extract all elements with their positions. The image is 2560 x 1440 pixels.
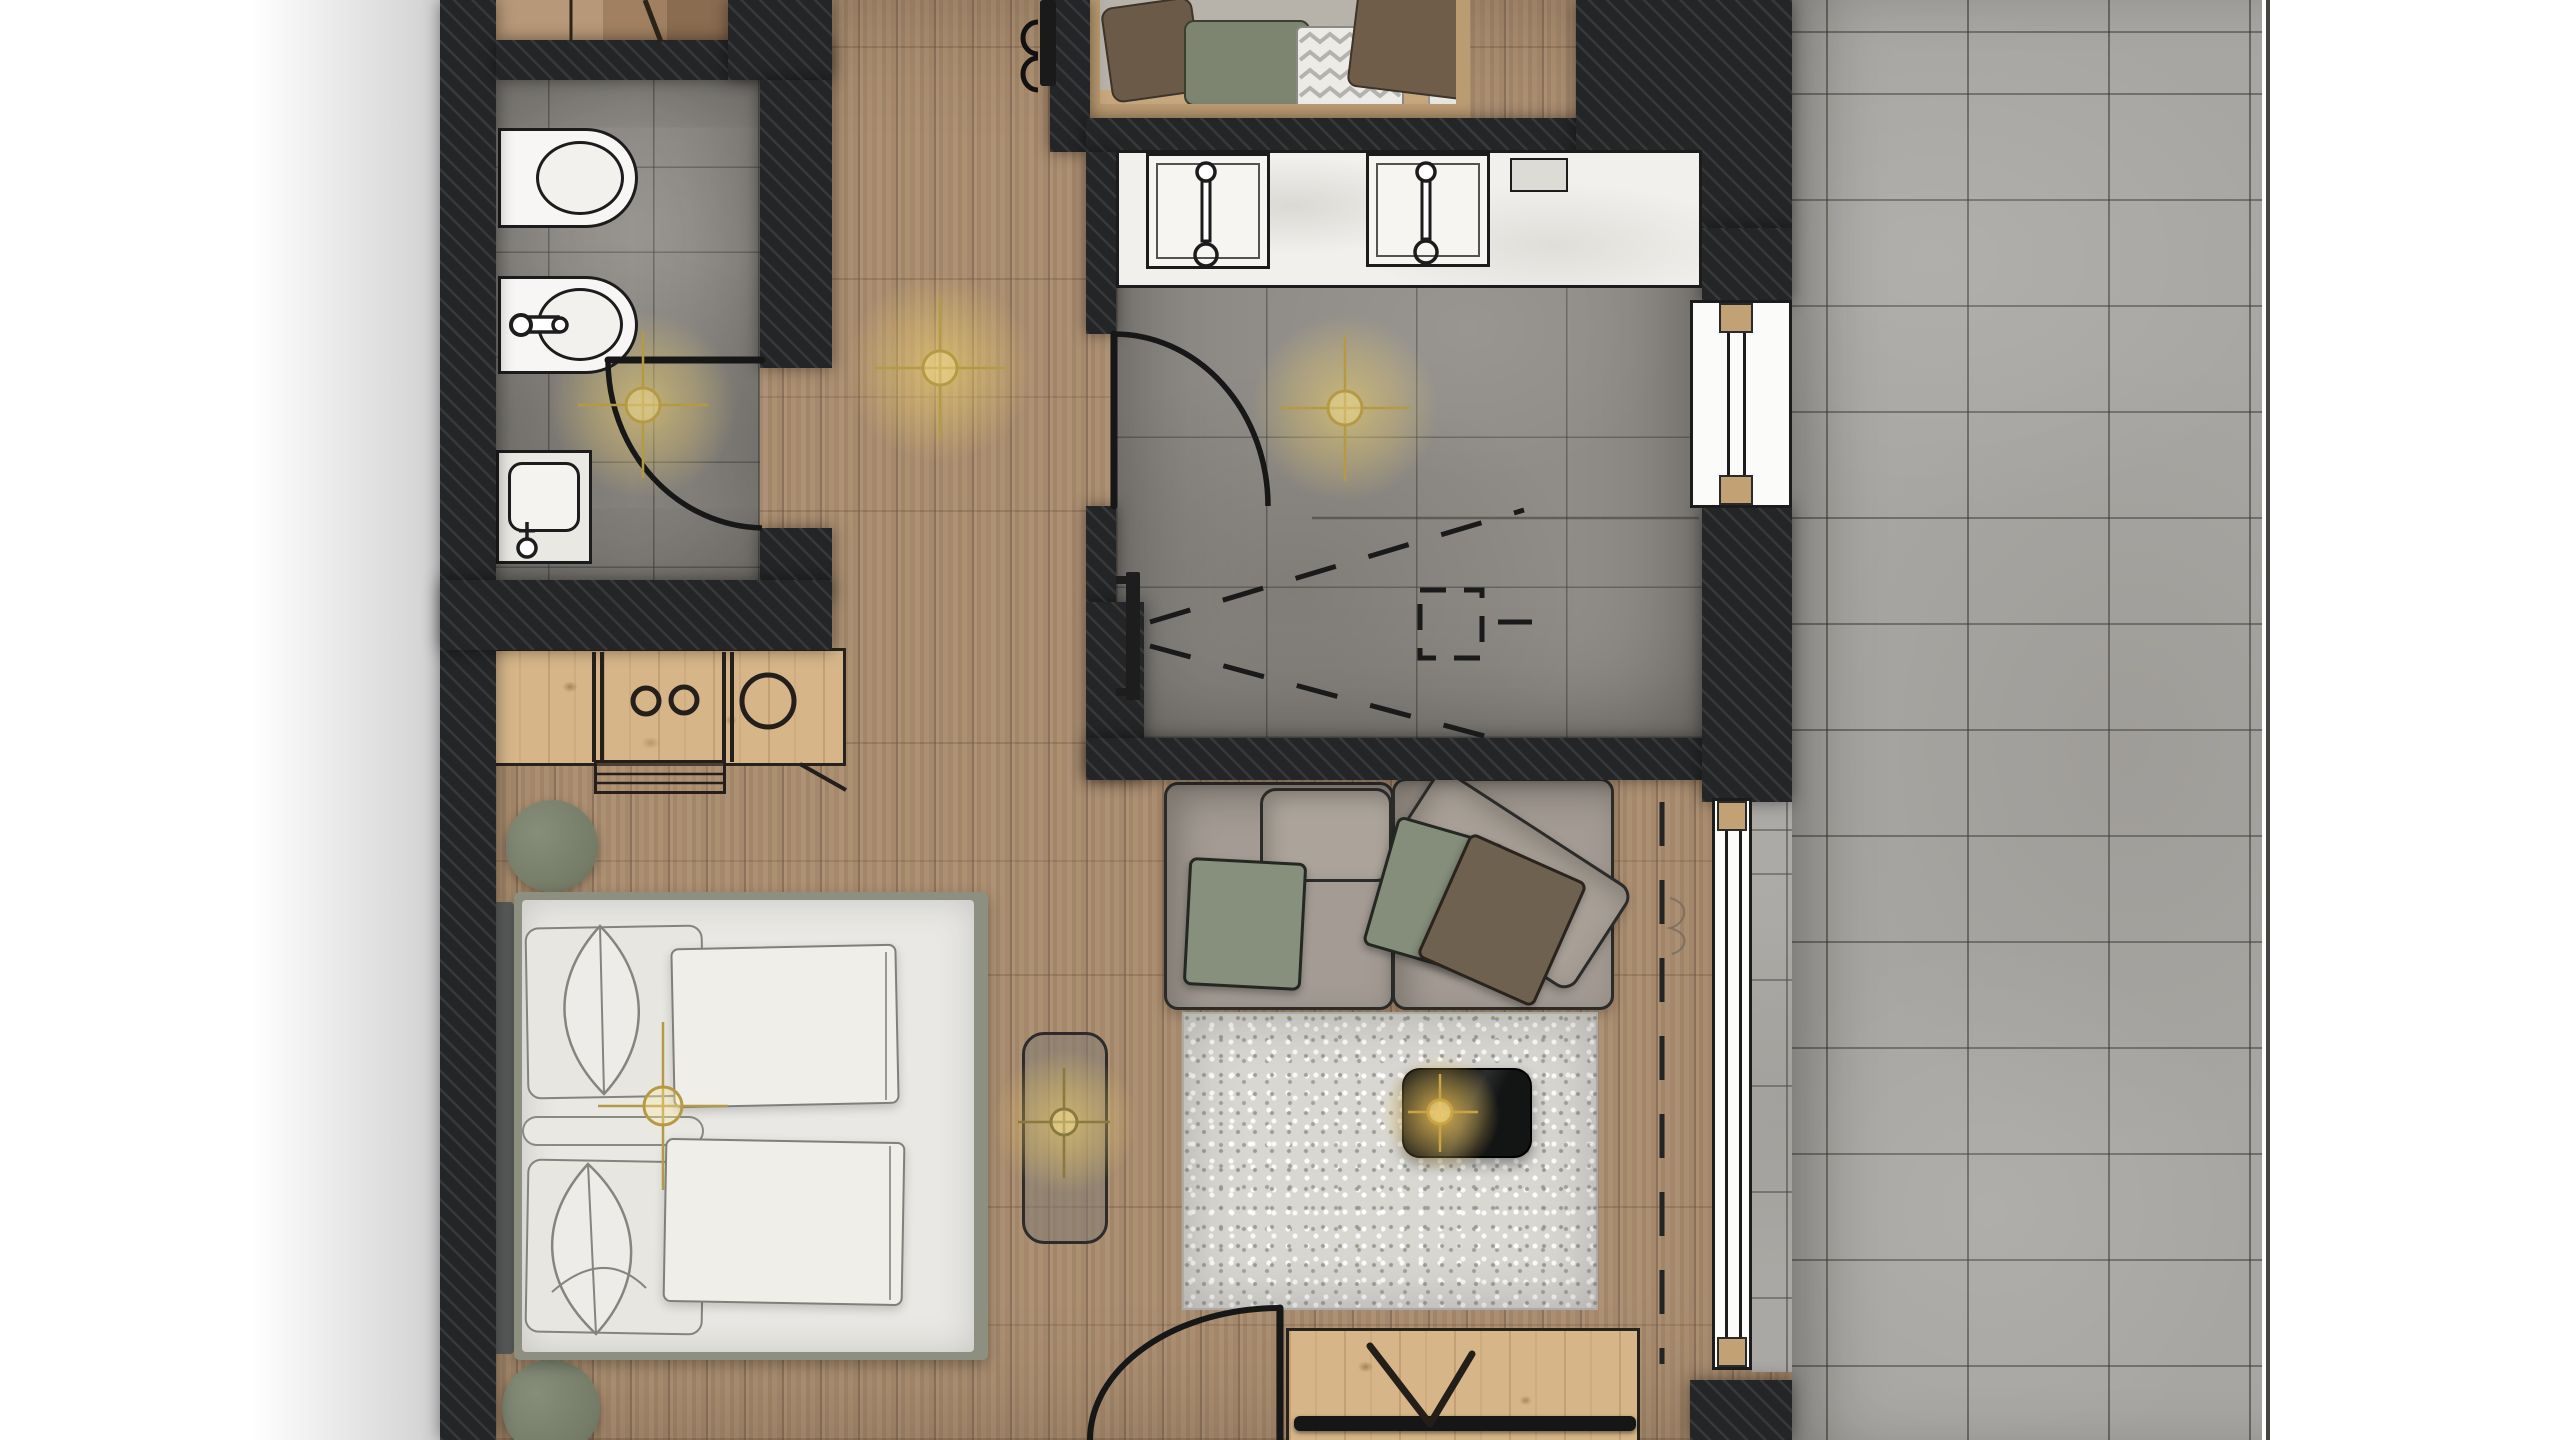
glass-door-wood-block-top bbox=[1717, 801, 1747, 831]
vanity-sink-right bbox=[1366, 153, 1490, 267]
glass-door-glass-line-a bbox=[1725, 831, 1728, 1337]
coffee-table bbox=[1402, 1068, 1532, 1158]
wall-neighbor-right bbox=[728, 0, 832, 80]
wall-right-mid bbox=[1702, 506, 1792, 802]
wall-shower-bottom bbox=[1086, 738, 1706, 780]
window-shower bbox=[1690, 300, 1792, 508]
bed-duvet-top bbox=[670, 944, 899, 1109]
window-glass-line-a bbox=[1727, 333, 1730, 475]
sliding-glass-door bbox=[1712, 798, 1752, 1370]
foot-bench bbox=[1022, 1032, 1108, 1244]
linen-brown-blanket-right bbox=[1346, 0, 1470, 101]
tv-screen-bar bbox=[1294, 1416, 1636, 1431]
terrace-floor bbox=[1792, 0, 2262, 1440]
round-pouf-upper bbox=[506, 800, 598, 892]
sofa-green-pillow-left bbox=[1183, 857, 1308, 991]
wardrobe-niche bbox=[1086, 0, 1470, 118]
glass-door-wood-block-bottom bbox=[1717, 1337, 1747, 1367]
wall-right-above-window bbox=[1702, 228, 1792, 302]
window-glass-line-b bbox=[1743, 333, 1746, 475]
bidet-bowl bbox=[537, 288, 623, 361]
minibar-chair bbox=[594, 760, 726, 794]
wall-shower-left-upper bbox=[1086, 152, 1116, 334]
terrace-edge-line bbox=[2266, 0, 2270, 1440]
glass-door-glass-line-b bbox=[1739, 831, 1742, 1337]
floor-plan-canvas bbox=[0, 0, 2560, 1440]
window-wood-block-top bbox=[1719, 303, 1753, 333]
linen-green-cushion bbox=[1184, 20, 1310, 106]
wall-wc-bottom bbox=[440, 580, 832, 650]
wall-bottom-right-corner bbox=[1690, 1380, 1792, 1440]
bed-duvet-bottom bbox=[663, 1138, 906, 1306]
minibar-counter bbox=[490, 648, 846, 766]
toilet-bowl bbox=[536, 141, 624, 215]
wall-shower-left-lower bbox=[1086, 506, 1116, 602]
wall-left-outer bbox=[440, 0, 496, 1440]
vanity-wall-niche bbox=[1510, 158, 1568, 192]
window-wood-block-bottom bbox=[1719, 475, 1753, 505]
wall-wc-right-upper bbox=[760, 80, 832, 368]
vanity-sink-left bbox=[1146, 153, 1270, 269]
wall-hall-closet bbox=[1050, 0, 1090, 152]
shaggy-rug bbox=[1182, 1012, 1598, 1310]
washbasin-bowl bbox=[508, 462, 580, 532]
page-shadow-left bbox=[250, 0, 446, 1440]
terrace-threshold-patch bbox=[1752, 798, 1792, 1372]
